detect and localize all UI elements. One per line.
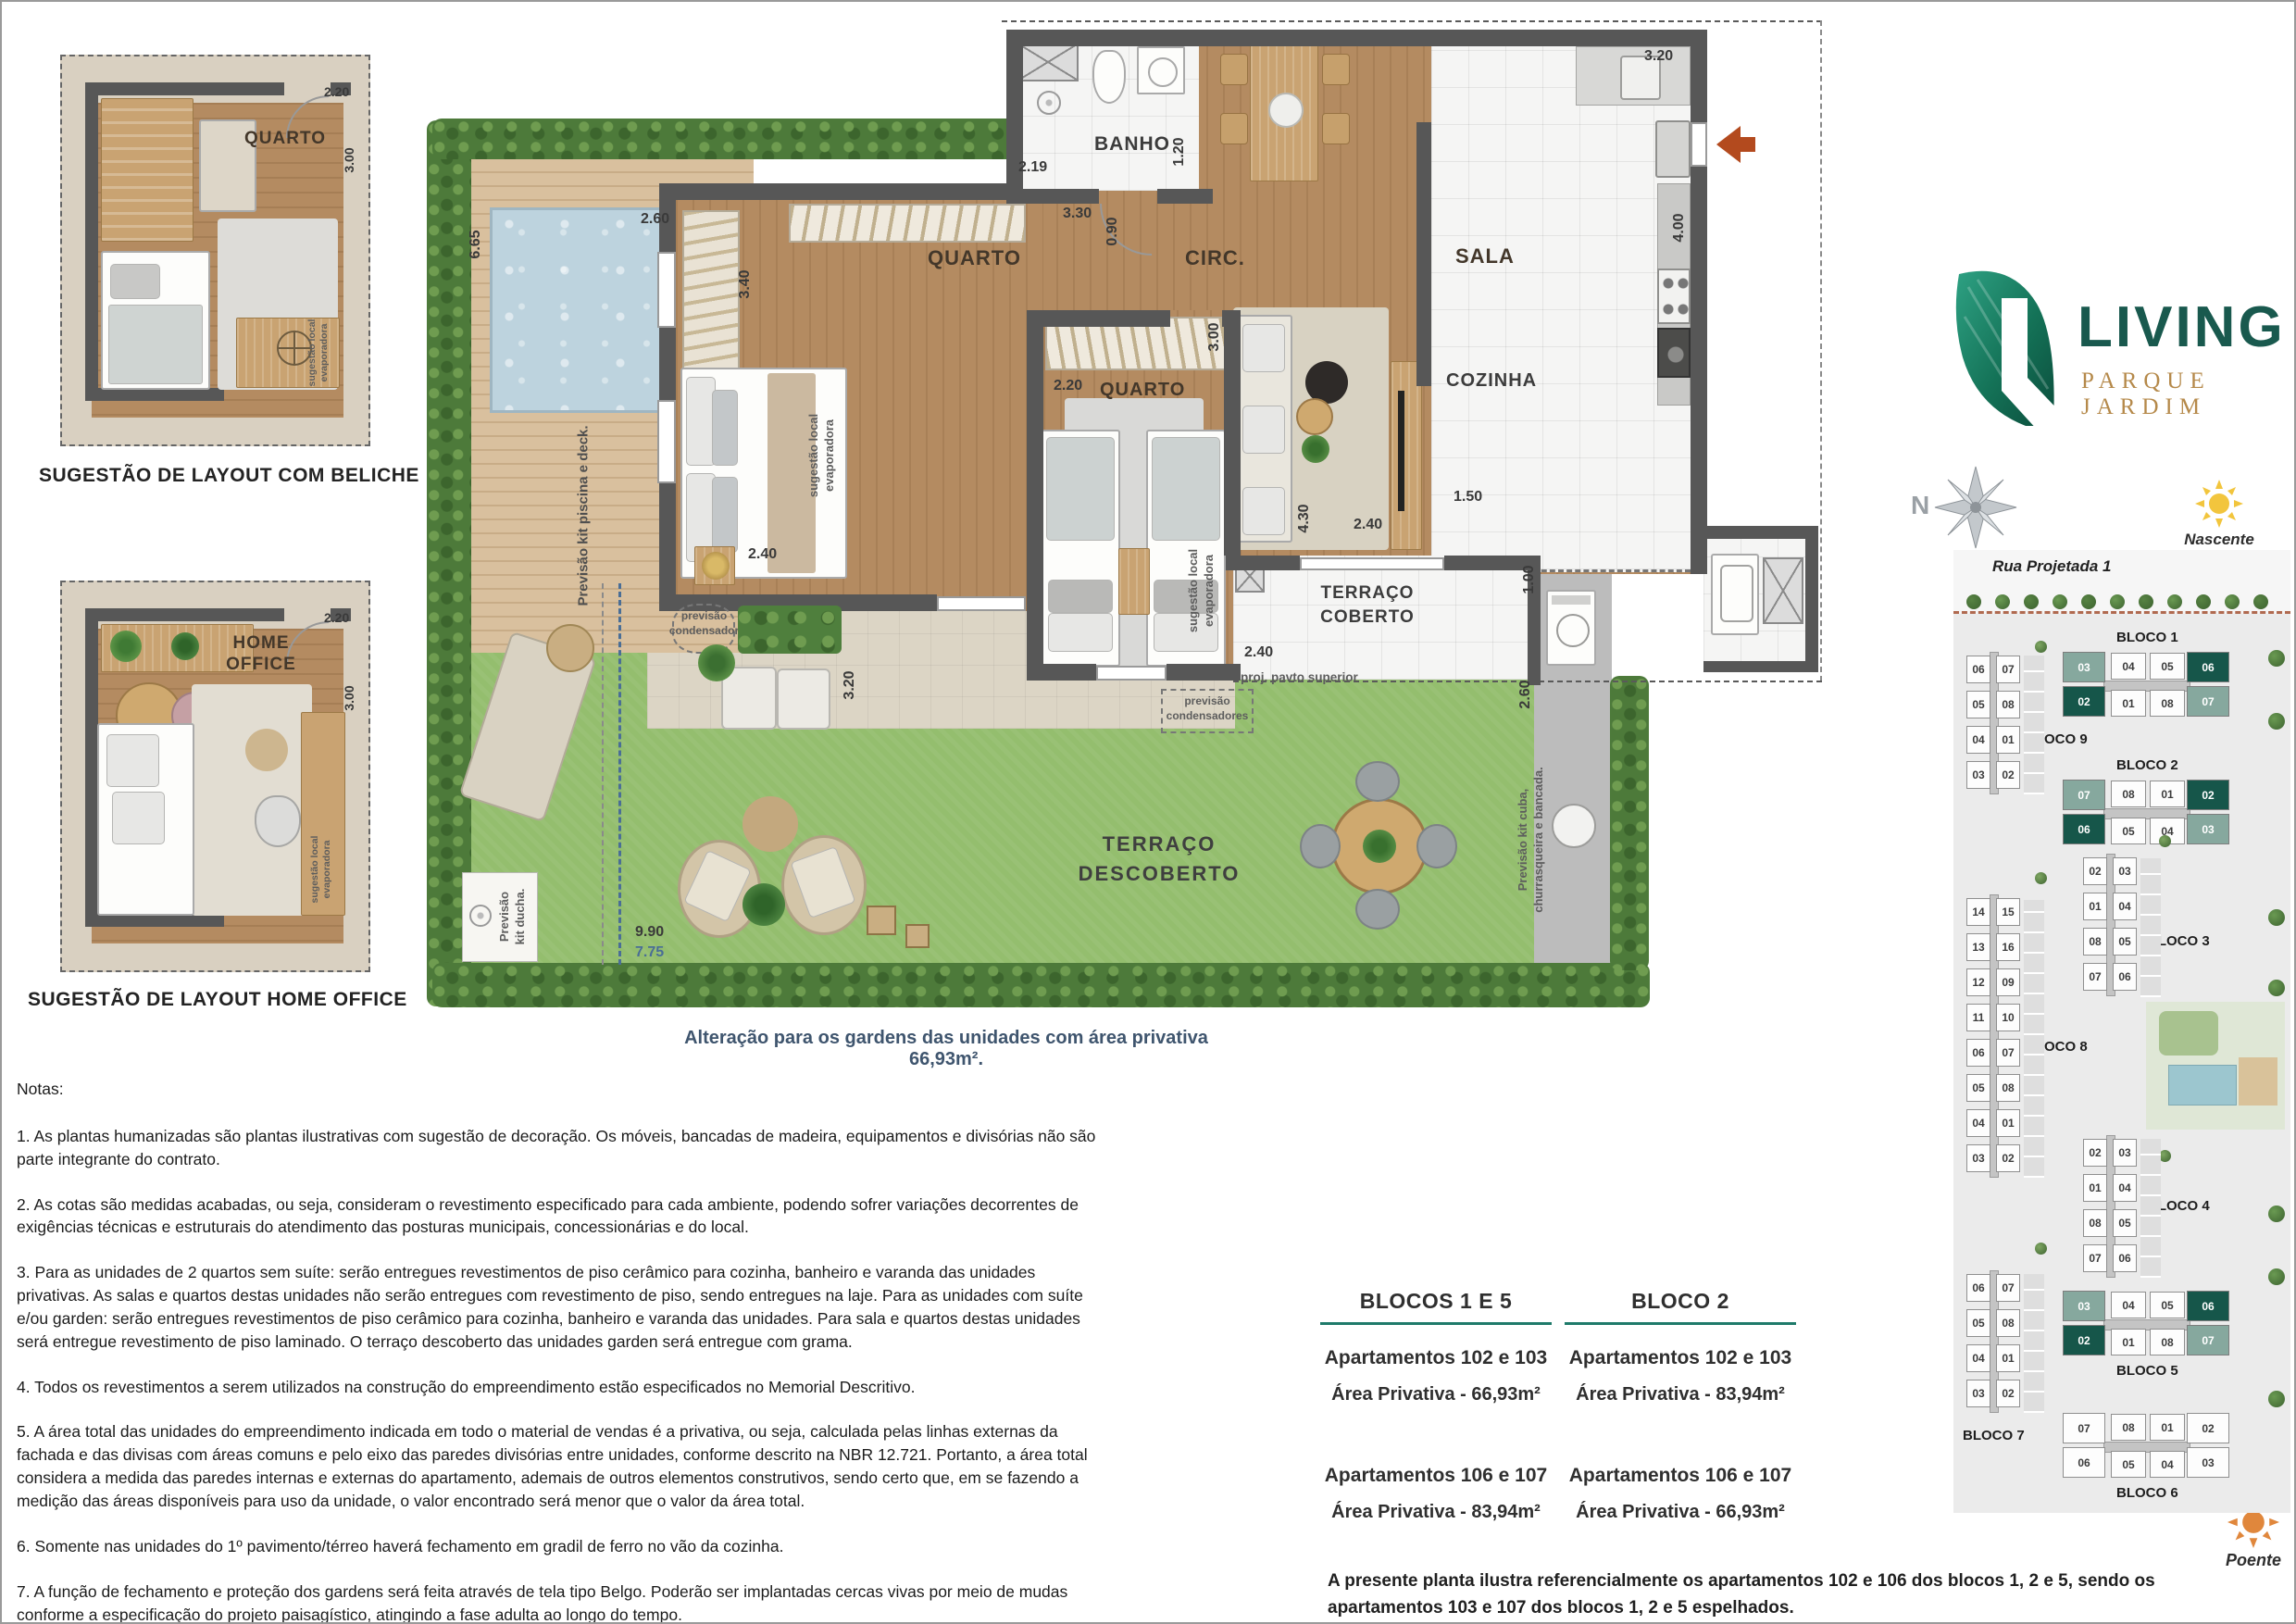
dash-garden-blue <box>618 583 621 965</box>
note-item: 3. Para as unidades de 2 quartos sem suí… <box>17 1261 1104 1353</box>
inset2-room-label: HOMEOFFICE <box>210 633 312 676</box>
notes-body: 1. As plantas humanizadas são plantas il… <box>17 1125 1104 1624</box>
amenity-lawn <box>2159 1011 2218 1056</box>
inset1-evap-note: sugestão localevaporadora <box>306 319 331 387</box>
dim-deck-w: 2.60 <box>641 211 669 228</box>
annex-wall-bottom <box>1703 661 1818 672</box>
inset2-wall-left <box>85 608 98 923</box>
label-banho: BANHO <box>1094 133 1170 156</box>
door-q1-garden <box>937 596 1026 611</box>
dash-right <box>1820 20 1822 681</box>
table-area: Área Privativa - 66,93m² <box>1565 1502 1796 1523</box>
dim-deck-h: 6.65 <box>468 230 484 258</box>
inset2-chair <box>255 795 301 847</box>
wall-kitchen-left <box>1416 122 1431 386</box>
nascente-marker: Nascente <box>2168 480 2270 549</box>
bed-blanket <box>1046 437 1115 541</box>
quarto1-shelf <box>789 204 1026 243</box>
dim-q2-w: 2.20 <box>1054 378 1082 394</box>
sofa-cushion <box>1242 324 1285 372</box>
tv-icon <box>1398 391 1404 511</box>
note-item: 1. As plantas humanizadas são plantas il… <box>17 1125 1104 1171</box>
gold-tray-icon <box>702 552 730 580</box>
garden-chair <box>1416 824 1457 868</box>
sofa-cushion <box>1242 406 1285 454</box>
entry-arrow-tail <box>1741 137 1755 152</box>
egg-chair <box>781 835 867 935</box>
note-cuba: Previsão kit cuba,churrasqueira e bancad… <box>1516 767 1547 913</box>
inset2-wall-bottom <box>85 914 224 927</box>
wall-right-upper <box>1691 30 1707 122</box>
sofa <box>1235 315 1292 543</box>
inset-home-office: HOMEOFFICE 2.20 3.00 sugestão localevapo… <box>60 581 370 972</box>
inset1-bunk-bed <box>101 251 210 390</box>
note-evap-quarto1: sugestão localevaporadora <box>806 414 838 497</box>
table-area: Área Privativa - 83,94m² <box>1565 1384 1796 1405</box>
plant-icon <box>171 632 199 660</box>
note-item: 6. Somente nas unidades do 1º pavimento/… <box>17 1535 1104 1558</box>
brand-logo: LIVING PARQUE JARDIM <box>1950 269 2255 435</box>
inset2-wall-top <box>85 608 284 621</box>
wall-right-lower <box>1691 167 1707 574</box>
bed-blanket <box>108 305 203 384</box>
logo-subtitle: PARQUE JARDIM <box>2081 369 2255 420</box>
note-item: 5. A área total das unidades do empreend… <box>17 1420 1104 1512</box>
dim-circ-h: 0.90 <box>1104 217 1121 245</box>
shower-kit-icon <box>469 905 492 927</box>
garden-table-plant <box>1363 830 1396 863</box>
window-q1-left1 <box>657 252 676 328</box>
sun-rise-icon <box>2195 480 2243 528</box>
round-rug <box>742 796 798 852</box>
entry-arrow-icon <box>1716 126 1741 163</box>
dim-320-top: 3.20 <box>1644 48 1673 65</box>
inset2-caption: SUGESTÃO DE LAYOUT HOME OFFICE <box>28 989 407 1011</box>
dim-sala-w: 2.40 <box>1354 517 1382 533</box>
dim-cozinha-w: 1.50 <box>1454 489 1482 506</box>
label-sala: SALA <box>1455 244 1515 269</box>
stove-icon <box>1657 269 1691 324</box>
garden-planter-square <box>867 906 896 935</box>
egg-chair-cushion <box>791 846 856 918</box>
bed-pillow-gray <box>712 477 738 553</box>
annex-wall-right <box>1805 526 1818 672</box>
wall-q2-left <box>1027 310 1043 681</box>
wall-banho-bottom-a <box>1006 189 1099 204</box>
inset2-dim-height: 3.00 <box>342 685 356 710</box>
sofa-cushion <box>112 792 165 844</box>
inset1-dim-width: 2.20 <box>324 84 349 99</box>
compass-north-label: N <box>1911 491 1929 520</box>
note-item: 2. As cotas são medidas acabadas, ou sej… <box>17 1193 1104 1240</box>
plant-icon <box>698 644 735 681</box>
table-area: Área Privativa - 66,93m² <box>1320 1384 1552 1405</box>
door-q2-garden <box>1096 666 1167 681</box>
note-pavto: proj. pavto superior <box>1241 670 1358 684</box>
note-piscina: Previsão kit piscina e deck. <box>576 425 592 606</box>
table-apartments: Apartamentos 106 e 107 <box>1320 1465 1552 1487</box>
notes-title: Notas: <box>17 1078 1104 1101</box>
inset1-wall-left <box>85 82 98 397</box>
bed-pillow-gray <box>1048 580 1113 613</box>
bed-pillow <box>1048 613 1113 652</box>
wall-top <box>1006 30 1707 46</box>
entry-door <box>1691 122 1707 167</box>
quarto2-nightstand <box>1118 548 1150 615</box>
side-table-round <box>546 624 594 672</box>
inset2-rug-round <box>245 729 288 771</box>
garden-chair <box>1300 824 1341 868</box>
path-sink <box>1552 804 1596 848</box>
plant-icon <box>1302 435 1329 463</box>
garden-chair <box>1355 889 1400 930</box>
table-header: BLOCOS 1 E 5 <box>1320 1289 1552 1314</box>
washer-drum <box>1556 614 1590 647</box>
table-rule <box>1320 1322 1552 1325</box>
dining-chair <box>1220 54 1248 85</box>
disclaimer-text: A presente planta ilustra referencialmen… <box>1328 1568 2263 1621</box>
wall-banho-left <box>1006 30 1023 204</box>
inset1-wall-bottom <box>85 388 224 401</box>
garden-chair <box>1355 761 1400 802</box>
dim-terraco-w: 2.40 <box>1244 644 1273 661</box>
hedge-right <box>1610 676 1649 970</box>
garden-table <box>1331 798 1428 894</box>
siteplan-street-label: Rua Projetada 1 <box>1992 557 2112 576</box>
table-header: BLOCO 2 <box>1565 1289 1796 1314</box>
fridge-icon <box>1655 120 1691 178</box>
sofa-cushion <box>1242 487 1285 535</box>
table-rule <box>1565 1322 1796 1325</box>
table-apartments: Apartamentos 102 e 103 <box>1320 1347 1552 1369</box>
dim-terraco-h: 1.00 <box>1521 565 1538 593</box>
inset2-sofa <box>97 723 194 916</box>
toilet-icon <box>1092 50 1126 104</box>
inset2-rug <box>192 684 312 916</box>
dim-q1-bed: 2.40 <box>748 546 777 563</box>
note-ducha: Previsãokit ducha. <box>497 889 529 945</box>
quarto1-wardrobe <box>682 210 740 391</box>
washer-icon <box>1546 590 1596 666</box>
dim-garden-w: 9.90 <box>635 924 664 941</box>
wall-q1-top <box>659 183 1011 200</box>
poente-label: Poente <box>2207 1551 2296 1570</box>
garden-planter-square <box>905 924 930 948</box>
planter-strip <box>738 606 842 654</box>
inset2-evap-note: sugestão localevaporadora <box>309 836 333 904</box>
inset1-wall-top <box>85 82 284 95</box>
dining-chair <box>1322 113 1350 144</box>
notes-section: Notas: 1. As plantas humanizadas são pla… <box>17 1078 1104 1624</box>
label-quarto2: QUARTO <box>1100 380 1185 401</box>
washer-panel <box>1552 595 1591 605</box>
amenity-deck <box>2239 1057 2277 1106</box>
area-table-blocos-1-5: BLOCOS 1 E 5 Apartamentos 102 e 103 Área… <box>1320 1289 1552 1523</box>
hedge-top <box>432 119 1043 159</box>
window-q1-left2 <box>657 400 676 483</box>
label-circ: CIRC. <box>1185 246 1245 270</box>
tv-sideboard <box>1391 361 1422 550</box>
wall-q2-bottom-b <box>1167 664 1241 681</box>
dim-q1-h: 3.40 <box>737 269 754 298</box>
wall-q2-top-a <box>1027 310 1170 327</box>
laundry-tub-icon <box>1711 554 1759 635</box>
siteplan-amenity-area <box>2146 1002 2285 1130</box>
table-apartments: Apartamentos 106 e 107 <box>1565 1465 1796 1487</box>
label-terraco-coberto: TERRAÇOCOBERTO <box>1289 581 1446 629</box>
door-terraco <box>1300 557 1444 570</box>
sink-icon <box>1137 46 1185 94</box>
dash-garden-inner <box>602 583 604 965</box>
note-item: 4. Todos os revestimentos a serem utiliz… <box>17 1376 1104 1399</box>
dim-banho-h: 1.20 <box>1171 137 1188 166</box>
compass-rose-icon <box>1933 465 2018 550</box>
label-terraco-descoberto: TERRAÇODESCOBERTO <box>1048 830 1270 889</box>
leaf-logo-icon <box>1950 269 2072 433</box>
dim-garden-w2: 7.75 <box>635 944 664 961</box>
wall-banho-bottom-b <box>1157 189 1213 204</box>
dining-chair <box>1322 54 1350 85</box>
table-apartments: Apartamentos 102 e 103 <box>1565 1347 1796 1369</box>
wall-terraco-top-a <box>1226 556 1300 570</box>
shower-icon <box>1037 91 1061 115</box>
sink-bowl <box>1148 57 1178 87</box>
area-table-bloco-2: BLOCO 2 Apartamentos 102 e 103 Área Priv… <box>1565 1289 1796 1523</box>
egg-chair-cushion <box>683 850 751 922</box>
label-quarto1: QUARTO <box>928 246 1021 270</box>
amenity-pool <box>2168 1065 2237 1106</box>
floorplan-sheet: QUARTO 2.20 3.00 sugestão localevaporado… <box>0 0 2296 1624</box>
oven-icon <box>1657 328 1691 378</box>
dining-chair <box>1220 113 1248 144</box>
dining-plate <box>1268 93 1304 128</box>
inset-beliche: QUARTO 2.20 3.00 sugestão localevaporado… <box>60 55 370 446</box>
note-item: 7. A função de fechamento e proteção dos… <box>17 1580 1104 1624</box>
inset1-caption: SUGESTÃO DE LAYOUT COM BELICHE <box>39 465 419 487</box>
plan-caption: Alteração para os gardens das unidades c… <box>650 1028 1242 1070</box>
shaft-banho <box>1017 43 1079 81</box>
wall-q2-right <box>1224 310 1241 556</box>
note-evap-quarto2: sugestão localevaporadora <box>1186 549 1217 632</box>
sofa-cushion <box>106 734 159 787</box>
dim-circ-w: 3.30 <box>1063 206 1092 222</box>
bed-blanket <box>1152 437 1220 541</box>
ottoman <box>777 668 830 730</box>
shaft-annex <box>1763 557 1803 624</box>
logo-title: LIVING <box>2078 294 2286 360</box>
hedge-bottom <box>432 963 1650 1007</box>
tub-basin <box>1720 565 1753 622</box>
dim-sala-h: 4.30 <box>1296 504 1313 532</box>
wall-q1-left <box>659 183 676 611</box>
coffee-table-dark <box>1305 361 1348 404</box>
dim-path-h: 2.60 <box>1517 680 1534 708</box>
quarto2-bed-left <box>1041 430 1120 667</box>
dim-garden-side: 3.20 <box>842 670 858 699</box>
plant-icon <box>110 631 142 662</box>
bed-pillow <box>110 264 160 299</box>
inset1-dim-height: 3.00 <box>342 147 356 172</box>
plant-icon <box>742 883 785 926</box>
table-area: Área Privativa - 83,94m² <box>1320 1502 1552 1523</box>
note-condensadores: previsãocondensadores <box>1152 694 1263 723</box>
bed-pillow-gray <box>712 390 738 466</box>
label-cozinha: COZINHA <box>1446 370 1537 392</box>
coffee-table-wood <box>1296 398 1333 435</box>
inset1-desk <box>101 98 193 242</box>
dash-top <box>1002 20 1822 22</box>
wall-q2-bottom-a <box>1027 664 1096 681</box>
dim-q2-h: 3.00 <box>1206 322 1223 351</box>
inset2-dim-width: 2.20 <box>324 610 349 625</box>
dim-banho-w: 2.19 <box>1018 159 1047 176</box>
inset1-room-label: QUARTO <box>244 129 326 149</box>
annex-wall-top <box>1703 526 1818 539</box>
nascente-label: Nascente <box>2168 531 2270 549</box>
dim-cozinha-h: 4.00 <box>1671 213 1688 242</box>
